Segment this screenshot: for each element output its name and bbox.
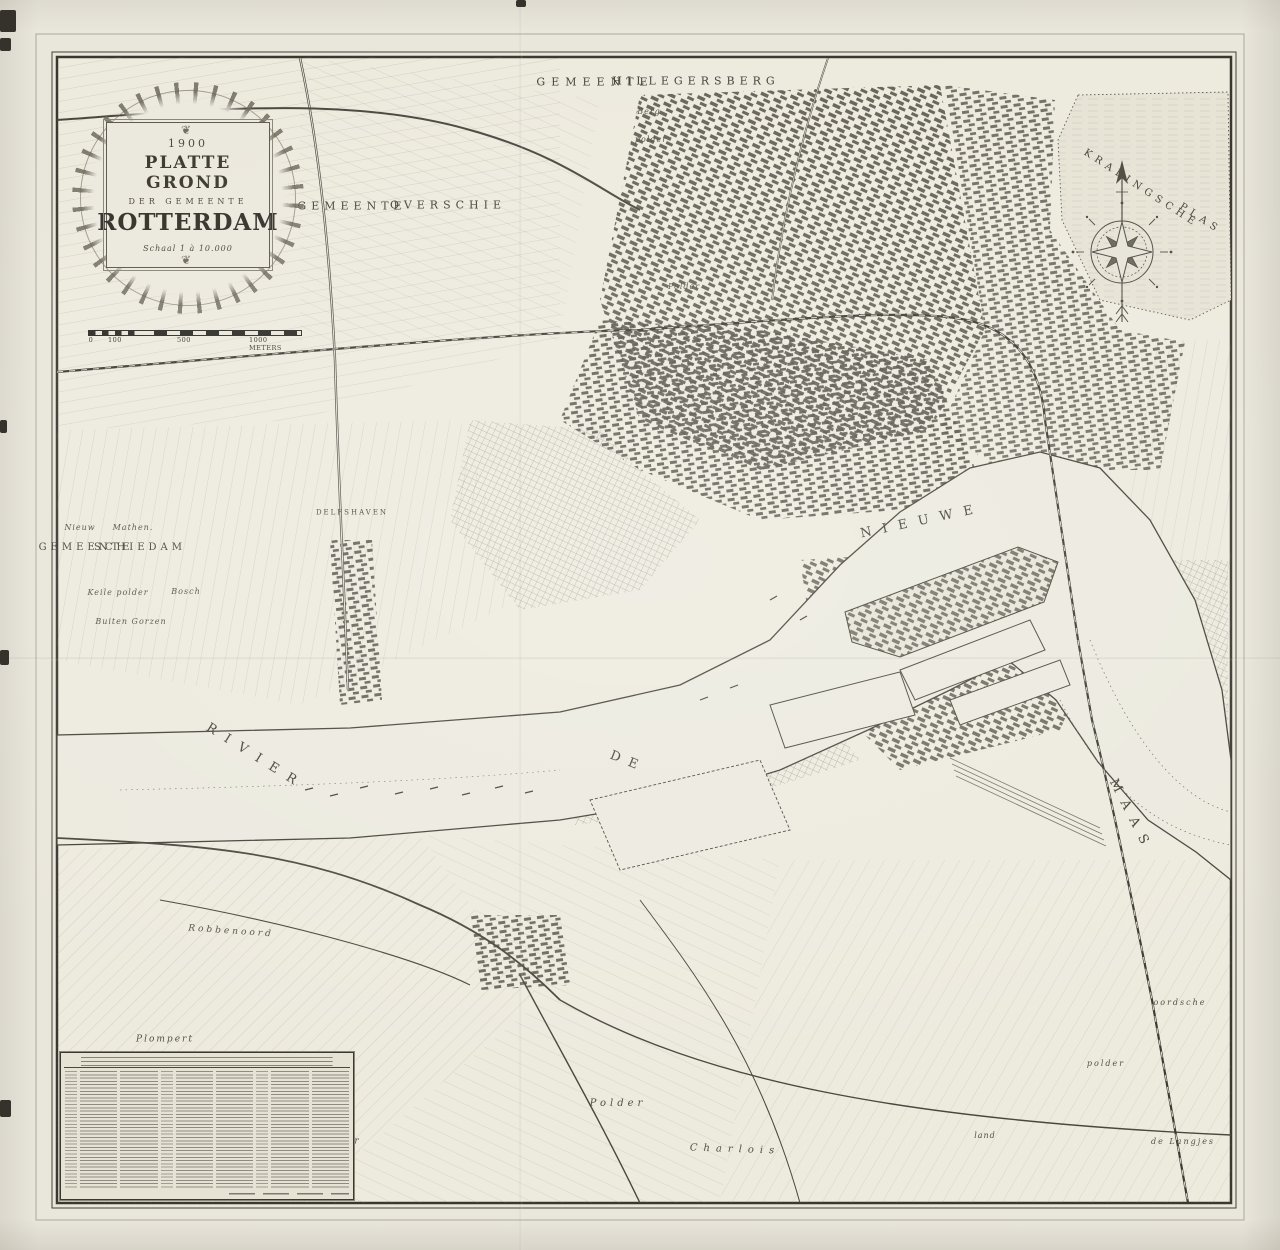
legend-footnote <box>65 1191 349 1197</box>
edge-mark <box>516 0 526 7</box>
map-label: Bosch <box>171 588 200 596</box>
legend-column <box>161 1071 173 1189</box>
map-label: Polder <box>668 283 700 291</box>
map-label: land <box>974 1132 996 1140</box>
map-city-name: ROTTERDAM <box>97 209 278 236</box>
legend-column <box>176 1071 213 1189</box>
edge-mark <box>0 10 16 32</box>
legend-header <box>64 1055 350 1068</box>
street-index-legend <box>60 1052 354 1200</box>
map-label: Polder <box>590 1099 647 1109</box>
compass-rose-icon <box>1066 152 1178 336</box>
title-cartouche: ❦ 1900 PLATTE GROND DER GEMEENTE ROTTERD… <box>72 82 304 314</box>
scale-label: 500 <box>177 336 191 344</box>
map-label: DELFSHAVEN <box>316 510 388 517</box>
edge-mark <box>0 38 11 51</box>
map-label: Robbenoord <box>188 925 274 940</box>
legend-column <box>80 1071 117 1189</box>
cartouche-frame: ❦ 1900 PLATTE GROND DER GEMEENTE ROTTERD… <box>106 122 270 268</box>
ornament-icon: ❦ <box>181 123 195 137</box>
scale-label: 1000 METERS <box>249 336 283 352</box>
edge-mark <box>0 650 9 665</box>
map-year: 1900 <box>168 137 208 150</box>
ornament-icon: ❦ <box>181 253 195 267</box>
map-label: Nieuw <box>64 524 95 532</box>
map-label: RIVIER <box>204 721 308 793</box>
scale-bar: 0 100 500 1000 METERS <box>88 326 300 342</box>
legend-column <box>65 1071 77 1189</box>
map-label: DE <box>608 749 648 775</box>
map-label: HILLEGERSBERG <box>612 76 779 87</box>
legend-column <box>120 1071 157 1189</box>
map-label: polder <box>635 136 667 144</box>
map-label: oordsche <box>1153 999 1206 1007</box>
map-label: Berg <box>637 108 661 116</box>
legend-column <box>216 1071 253 1189</box>
legend-columns <box>61 1069 353 1191</box>
map-label: MAAS <box>1107 777 1155 855</box>
map-label: de Langjes <box>1151 1138 1215 1146</box>
map-label: Mathen. <box>113 524 154 532</box>
edge-mark <box>0 420 7 433</box>
map-label: Plompert <box>136 1036 194 1045</box>
map-sheet[interactable]: GEMEENTEHILLEGERSBERGGEMEENTEOVERSCHIEGE… <box>0 0 1280 1250</box>
map-scale-note: Schaal 1 à 10.000 <box>143 244 233 253</box>
map-title: PLATTE GROND <box>107 153 269 193</box>
map-label: SCHIEDAM <box>94 543 186 553</box>
map-label: Charlois <box>690 1143 781 1156</box>
legend-column <box>312 1071 349 1189</box>
map-label: NIEUWE <box>859 502 985 541</box>
scale-label: 100 <box>108 336 122 344</box>
map-label: Keile polder <box>87 589 148 597</box>
map-label: OVERSCHIE <box>390 200 506 211</box>
legend-column <box>256 1071 268 1189</box>
legend-column <box>271 1071 308 1189</box>
edge-mark <box>0 1100 11 1117</box>
scale-label: 0 <box>89 336 94 344</box>
map-label: Buiten Gorzen <box>95 618 166 626</box>
map-label: polder <box>1087 1060 1125 1068</box>
map-subtitle: DER GEMEENTE <box>128 197 247 206</box>
